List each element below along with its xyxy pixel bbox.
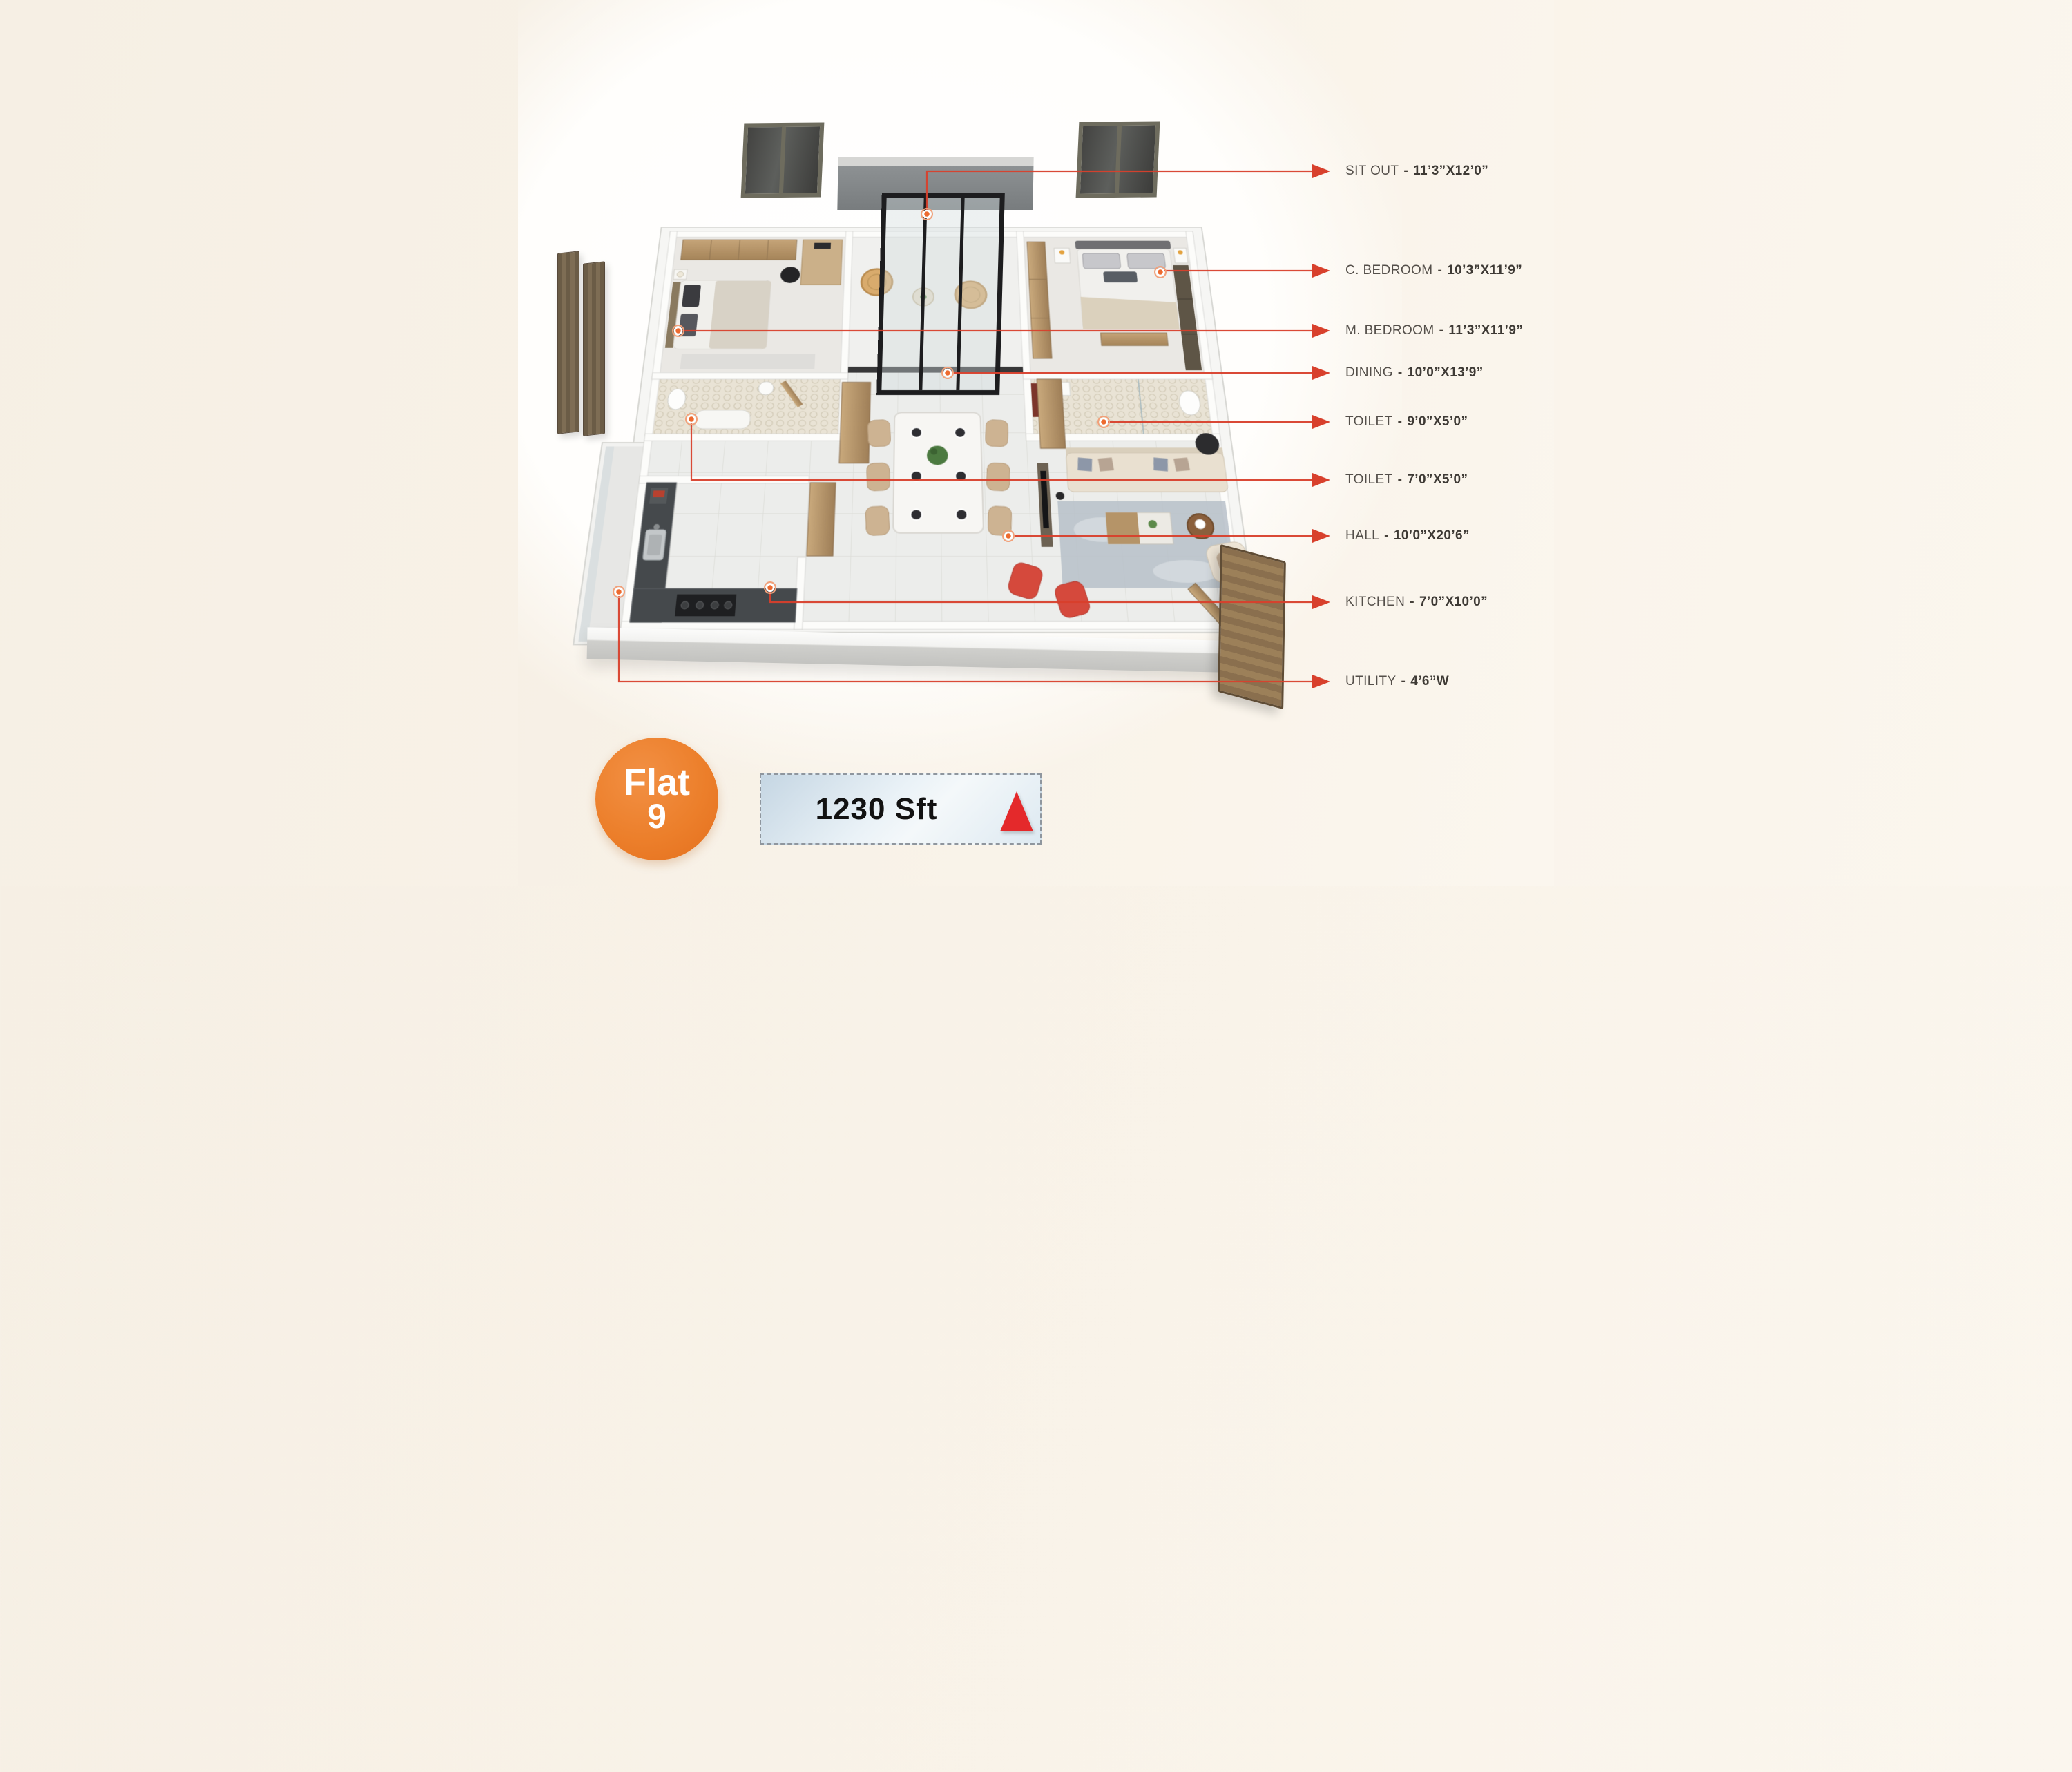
room-dims: 10’0”X20’6” — [1394, 528, 1470, 543]
room-dims: 7’0”X10’0” — [1419, 595, 1488, 609]
dining-furniture — [865, 413, 1013, 536]
area-value: 1230 Sft — [816, 792, 938, 827]
area-box: 1230 Sft — [760, 773, 1042, 845]
room-dims: 9’0”X5’0” — [1407, 414, 1468, 429]
legend-item-toilet-2: TOILET-7’0”X5’0” — [1345, 472, 1468, 488]
standing-door — [1037, 379, 1066, 448]
room-dims: 10’3”X11’9” — [1447, 263, 1522, 278]
legend-item-dining: DINING-10’0”X13’9” — [1345, 365, 1484, 381]
legend-item-kitchen: KITCHEN-7’0”X10’0” — [1345, 595, 1488, 610]
room-name: TOILET — [1345, 472, 1393, 487]
wood-wardrobe-panel — [557, 251, 579, 434]
flat-badge: Flat 9 — [595, 738, 718, 860]
legend-item-utility: UTILITY-4’6”W — [1345, 674, 1449, 689]
sliding-glass-door — [876, 193, 1005, 395]
flat-number: 9 — [647, 800, 666, 834]
legend-item-m-bedroom: M. BEDROOM-11’3”X11’9” — [1345, 323, 1523, 338]
room-dims: 7’0”X5’0” — [1407, 472, 1468, 487]
room-name: SIT OUT — [1345, 164, 1399, 178]
flat-word: Flat — [624, 765, 690, 800]
room-name: DINING — [1345, 365, 1393, 380]
room-dims: 10’0”X13’9” — [1408, 365, 1484, 380]
legend-item-hall: HALL-10’0”X20’6” — [1345, 528, 1470, 543]
room-name: C. BEDROOM — [1345, 263, 1432, 278]
room-dims: 11’3”X12’0” — [1413, 164, 1488, 178]
room-name: TOILET — [1345, 414, 1393, 429]
legend-item-sit-out: SIT OUT-11’3”X12’0” — [1345, 164, 1488, 179]
window-glass-right — [1076, 121, 1160, 198]
entry-door-leaf — [1218, 544, 1286, 709]
room-name: KITCHEN — [1345, 595, 1405, 609]
wood-wardrobe-panel — [583, 261, 605, 436]
legend-item-c-bedroom: C. BEDROOM-10’3”X11’9” — [1345, 263, 1522, 278]
room-name: M. BEDROOM — [1345, 323, 1435, 338]
room-dims: 11’3”X11’9” — [1448, 323, 1523, 338]
north-arrow-icon — [1000, 791, 1033, 831]
legend-item-toilet-1: TOILET-9’0”X5’0” — [1345, 414, 1468, 430]
room-name: UTILITY — [1345, 674, 1397, 688]
standing-door — [839, 382, 870, 463]
window-glass-left — [741, 122, 825, 198]
corridor-cabinet — [807, 483, 836, 556]
room-dims: 4’6”W — [1410, 674, 1449, 688]
room-name: HALL — [1345, 528, 1379, 543]
floorplan-page: SIT OUT-11’3”X12’0” C. BEDROOM-10’3”X11’… — [518, 0, 1554, 886]
